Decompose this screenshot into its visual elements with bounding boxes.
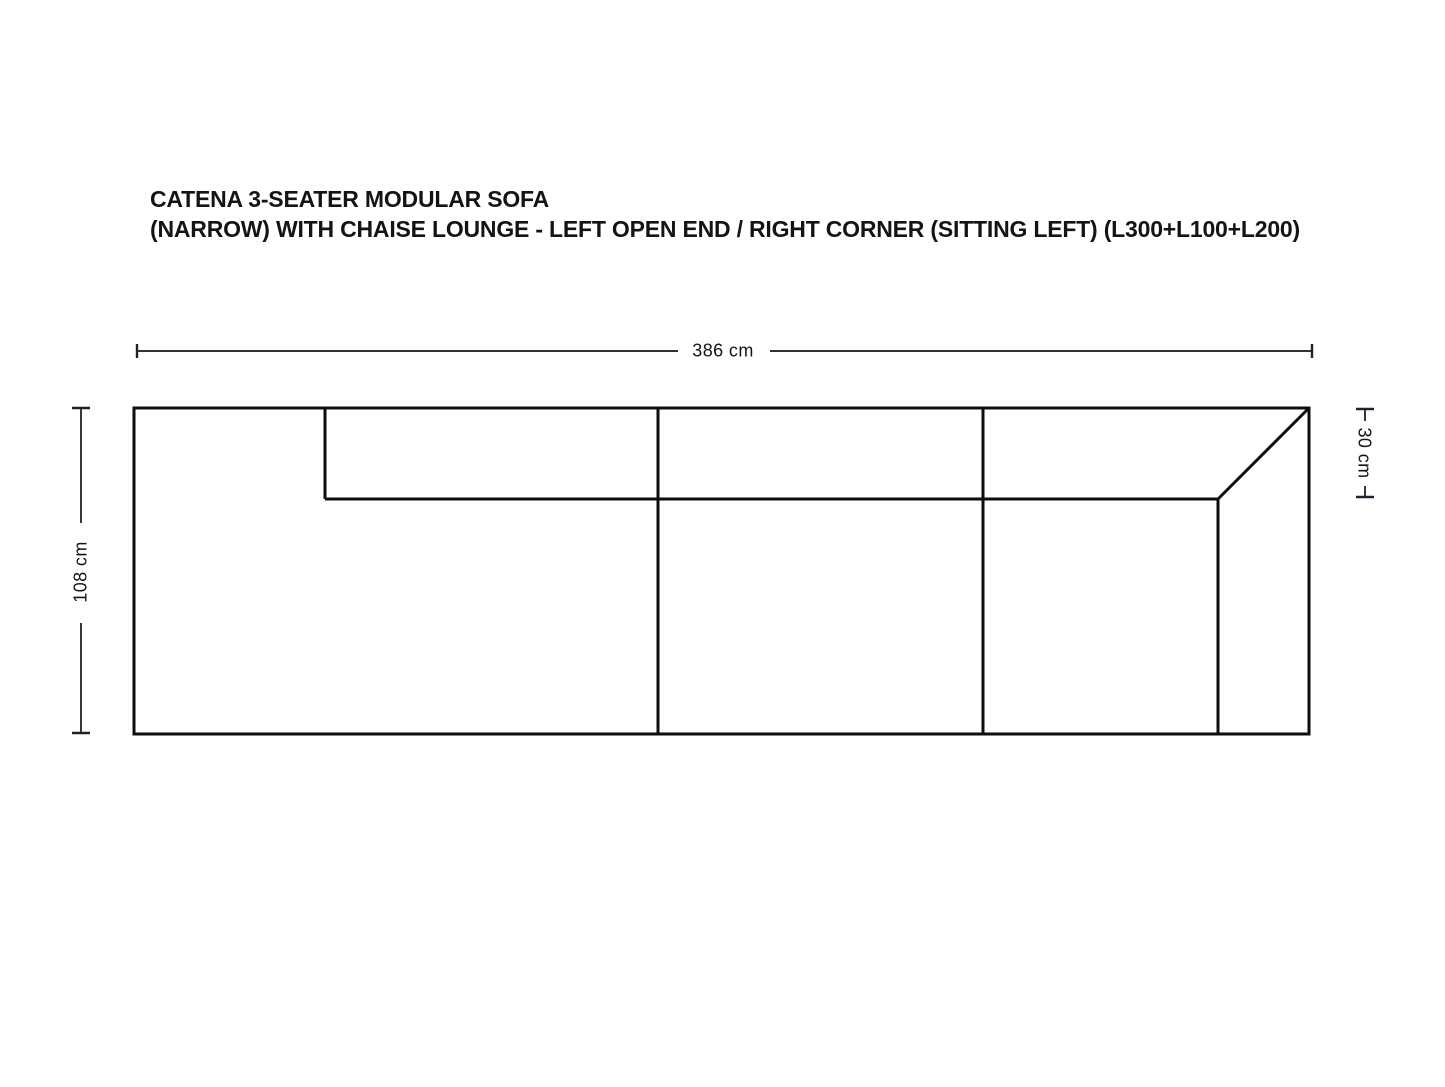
width-dimension-label: 386 cm [692,341,753,362]
sofa-outline-group [134,408,1309,734]
backrest-dimension-label: 30 cm [1354,427,1375,478]
sofa-dimension-diagram-page: CATENA 3-SEATER MODULAR SOFA (NARROW) WI… [0,0,1445,1087]
sofa-outer-outline [134,408,1309,734]
depth-dimension-label: 108 cm [71,541,92,602]
sofa-top-view-drawing [0,0,1445,1087]
corner-miter-diagonal-line [1218,408,1309,499]
